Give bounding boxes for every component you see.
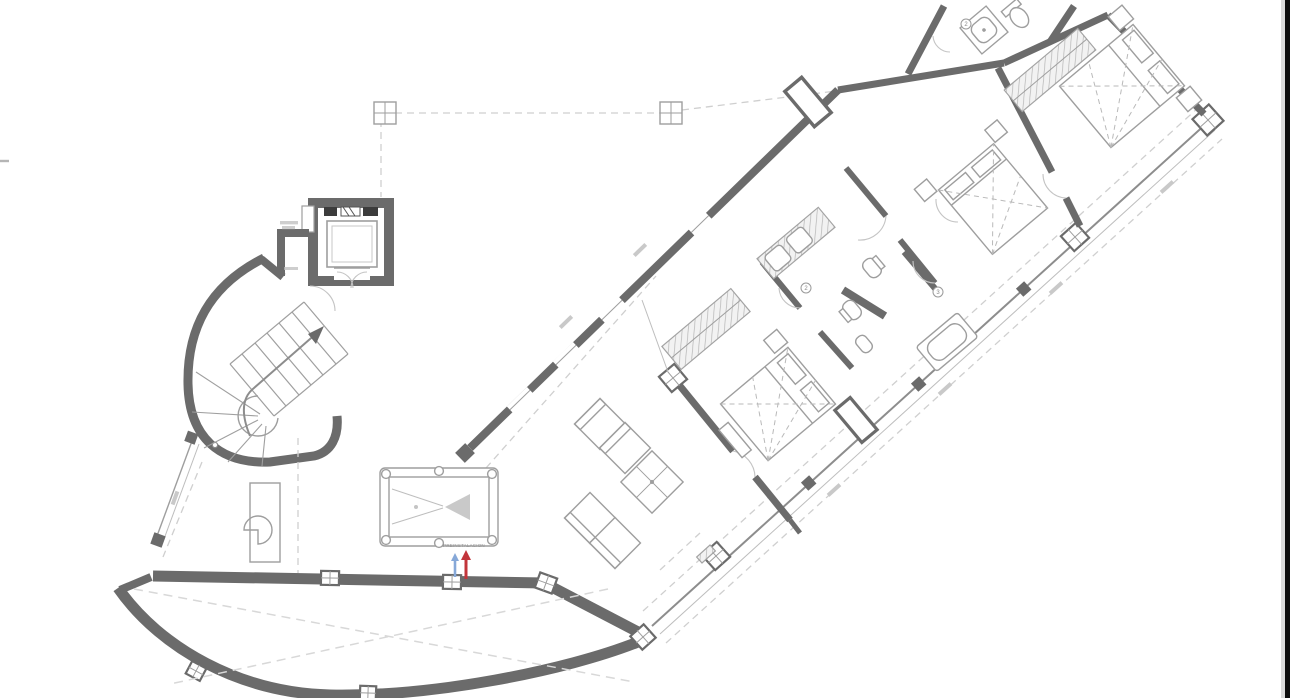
room-marker-bath-left: 2 xyxy=(801,283,811,293)
door-swing-top-bath xyxy=(933,36,950,52)
cold-arrow-icon xyxy=(451,553,459,577)
nightstand xyxy=(914,179,937,202)
terrace-inner-wall xyxy=(153,576,545,583)
stair-fan-treads xyxy=(192,372,278,466)
dim-tick-se-2 xyxy=(938,382,953,396)
dim-tick-se-4 xyxy=(1160,180,1175,194)
bath2-bidet xyxy=(854,333,875,355)
elevator-machinery-icon xyxy=(324,207,378,216)
dim-tick-nw-2 xyxy=(633,243,647,257)
bedroom-1-bed xyxy=(693,329,838,472)
floor-plan-canvas: 2 3 2 PREINSTALACION xyxy=(0,0,1290,698)
door-swing-bath-1 xyxy=(858,216,886,240)
hot-arrow-icon xyxy=(461,550,471,579)
right-edge-dark-strip xyxy=(1285,0,1290,698)
dim-tick-se-3 xyxy=(1049,281,1064,295)
tiny-label-smudge-2 xyxy=(282,226,295,229)
wardrobe-bedroom-1 xyxy=(662,289,750,370)
door-swing-bedroom-3 xyxy=(1043,174,1066,198)
bath1-toilet xyxy=(860,253,887,280)
west-window-wall xyxy=(150,431,202,557)
strip-post-2 xyxy=(1061,223,1089,251)
dim-tick-west xyxy=(171,491,180,506)
dim-tick-se-1 xyxy=(827,483,842,497)
elevator-cabin xyxy=(327,221,377,267)
floor-plan-page: 2 3 2 PREINSTALACION xyxy=(0,0,1290,698)
preinstall-label: PREINSTALACION xyxy=(443,543,485,548)
preinstall-annotation: PREINSTALACION xyxy=(443,543,485,579)
door-swing-corridor xyxy=(310,286,335,311)
terrace-post-2 xyxy=(443,575,461,589)
tiny-label-smudge-3 xyxy=(284,267,298,270)
top-bath-washbasin xyxy=(1001,0,1034,32)
se-protrusion xyxy=(835,397,877,442)
room-marker-bath-right: 3 xyxy=(933,287,943,297)
facade-window-3 xyxy=(599,297,625,323)
right-edge-light-strip xyxy=(1281,0,1285,698)
top-bath-shower xyxy=(960,6,1008,54)
bath1-double-washbasin xyxy=(757,207,835,278)
staircase xyxy=(188,258,348,466)
stair-direction-arrow xyxy=(308,326,324,344)
terrace-post-4 xyxy=(360,686,376,698)
skylight-post-right xyxy=(660,102,682,124)
room-marker-top-bath: 2 xyxy=(961,19,971,29)
facade-window-4 xyxy=(688,212,712,235)
tiny-label-smudge-1 xyxy=(280,221,298,224)
elevator xyxy=(302,203,389,288)
elevator-door-slot xyxy=(302,206,314,232)
nightstand xyxy=(985,120,1008,143)
roof-projection-dashes xyxy=(374,91,836,197)
facade-protrusion xyxy=(785,77,831,126)
southeast-glazing-strip xyxy=(643,104,1224,643)
desk xyxy=(244,483,280,562)
terrace xyxy=(118,571,656,698)
facade-window-1 xyxy=(507,387,533,413)
terrace-post-corner xyxy=(535,572,557,593)
dim-tick-nw-1 xyxy=(559,315,573,329)
bath3-bathtub xyxy=(916,312,978,371)
desk-chair xyxy=(244,516,272,544)
skylight-post-left xyxy=(374,102,396,124)
billiard-table xyxy=(380,467,498,548)
facade-window-2 xyxy=(553,342,579,368)
terrace-post-1 xyxy=(321,571,339,585)
